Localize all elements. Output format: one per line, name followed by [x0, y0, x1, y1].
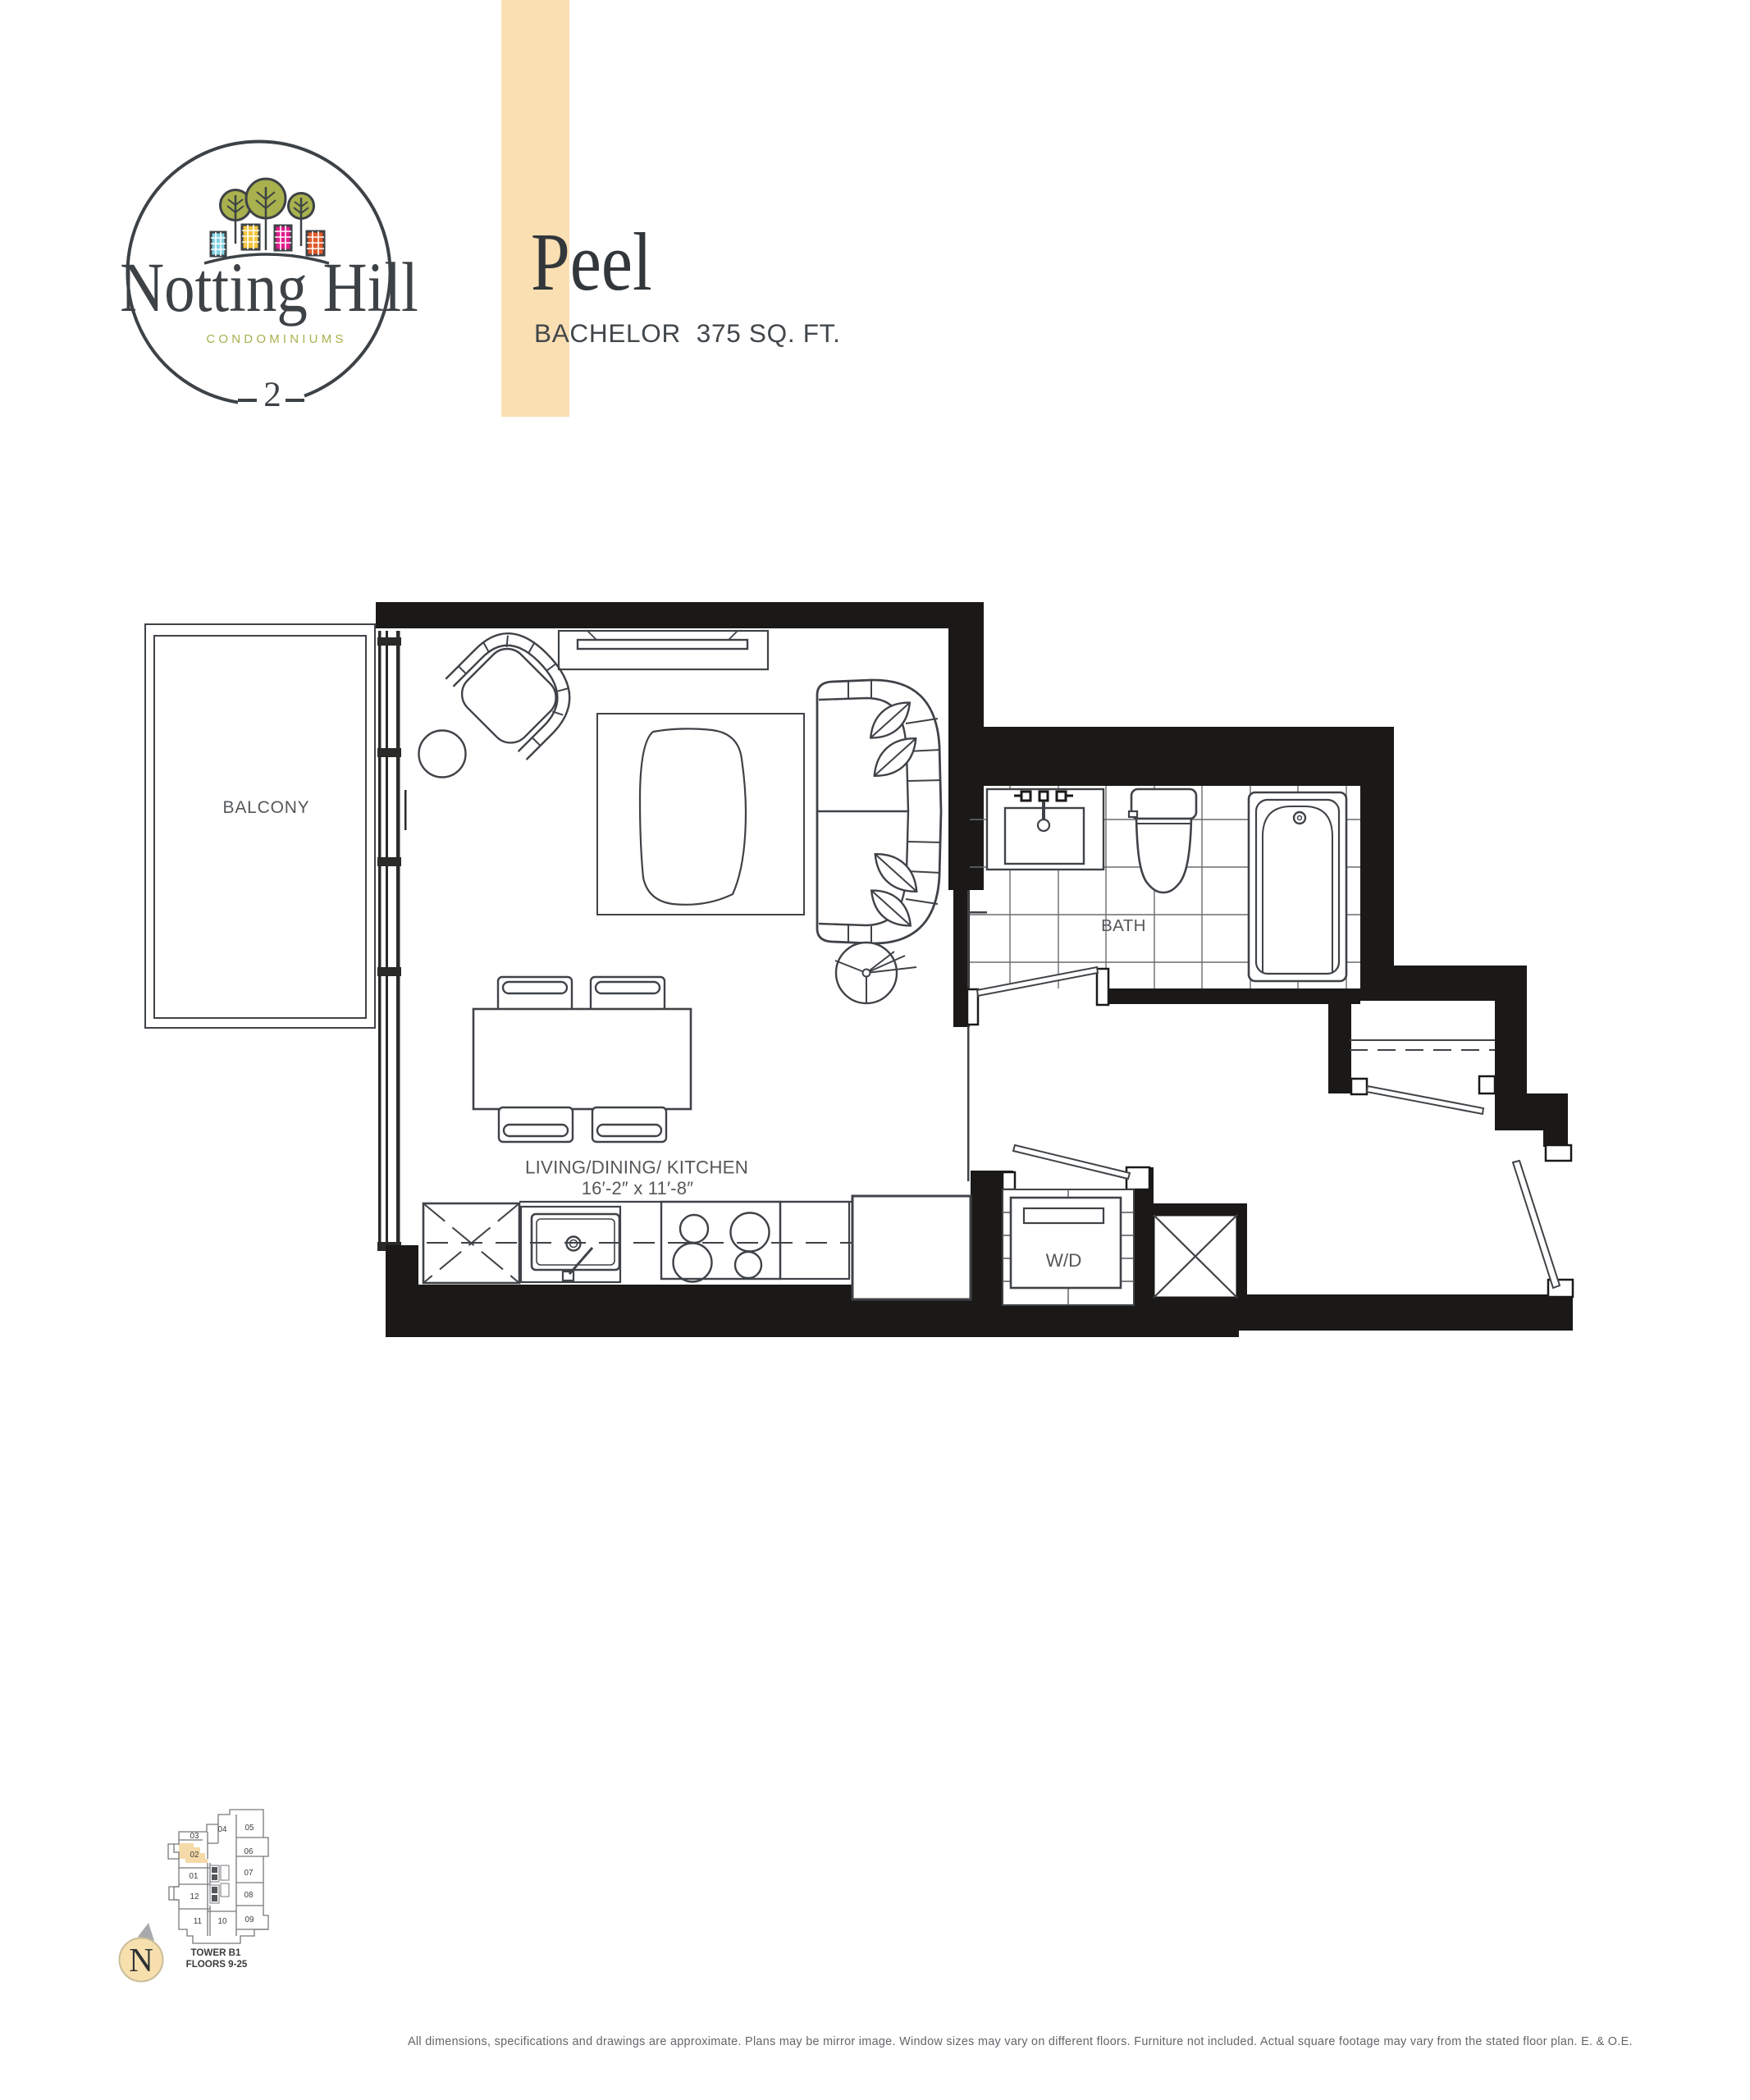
- svg-text:04: 04: [218, 1825, 227, 1834]
- svg-text:BATH: BATH: [1101, 916, 1146, 935]
- svg-text:10: 10: [218, 1917, 227, 1926]
- svg-text:W/D: W/D: [1046, 1250, 1082, 1271]
- svg-text:All dimensions, specifications: All dimensions, specifications and drawi…: [408, 2035, 1633, 2048]
- svg-text:BALCONY: BALCONY: [223, 798, 310, 817]
- svg-text:01: 01: [190, 1872, 199, 1881]
- svg-text:12: 12: [190, 1892, 199, 1901]
- svg-text:05: 05: [245, 1824, 254, 1833]
- svg-text:03: 03: [190, 1832, 199, 1841]
- svg-text:07: 07: [244, 1869, 254, 1878]
- svg-text:2: 2: [263, 376, 281, 414]
- svg-text:FLOORS 9-25: FLOORS 9-25: [186, 1959, 248, 1970]
- svg-text:16′-2″ x 11′-8″: 16′-2″ x 11′-8″: [582, 1178, 693, 1198]
- svg-text:11: 11: [194, 1917, 202, 1926]
- svg-text:08: 08: [244, 1891, 254, 1900]
- svg-text:TOWER B1: TOWER B1: [191, 1947, 242, 1958]
- svg-text:Notting Hill: Notting Hill: [120, 249, 418, 326]
- svg-text:LIVING/DINING/ KITCHEN: LIVING/DINING/ KITCHEN: [525, 1157, 748, 1178]
- svg-text:02: 02: [190, 1851, 199, 1860]
- svg-text:N: N: [129, 1941, 153, 1979]
- svg-text:09: 09: [245, 1915, 254, 1924]
- svg-text:06: 06: [244, 1847, 254, 1856]
- svg-text:CONDOMINIUMS: CONDOMINIUMS: [206, 332, 346, 346]
